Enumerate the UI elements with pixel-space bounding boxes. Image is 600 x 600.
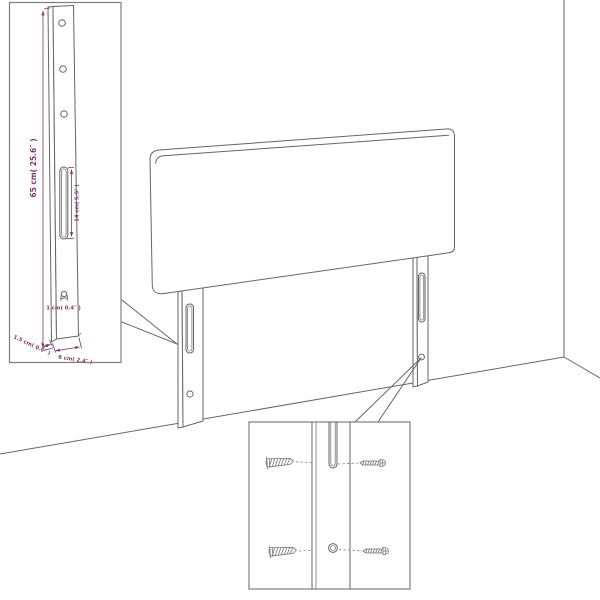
leg-height-label: 65 cm( 25.6″ ) — [29, 138, 38, 197]
headboard-assembly-diagram: 65 cm( 25.6″ ) 14 cm( 5.5″ ) 1 cm( 0.4″ … — [0, 0, 600, 600]
mounting-detail-inset — [249, 422, 410, 589]
leg-detail-inset: 65 cm( 25.6″ ) 14 cm( 5.5″ ) 1 cm( 0.4″ … — [10, 3, 122, 366]
hole-diameter-label: 1 cm( 0.4″ ) — [46, 306, 80, 312]
callout-line — [355, 358, 421, 422]
right-callout-lines — [355, 358, 421, 422]
left-callout-lines — [122, 300, 177, 344]
left-leg-front-face — [182, 280, 203, 427]
diagram-svg: 65 cm( 25.6″ ) 14 cm( 5.5″ ) 1 cm( 0.4″ … — [0, 0, 600, 600]
headboard-left-leg — [178, 280, 203, 428]
slot-length-label: 14 cm( 5.5″ ) — [75, 184, 81, 221]
headboard-panel — [150, 129, 455, 294]
callout-line — [122, 322, 177, 344]
callout-line — [378, 358, 421, 422]
callout-line — [122, 300, 177, 344]
